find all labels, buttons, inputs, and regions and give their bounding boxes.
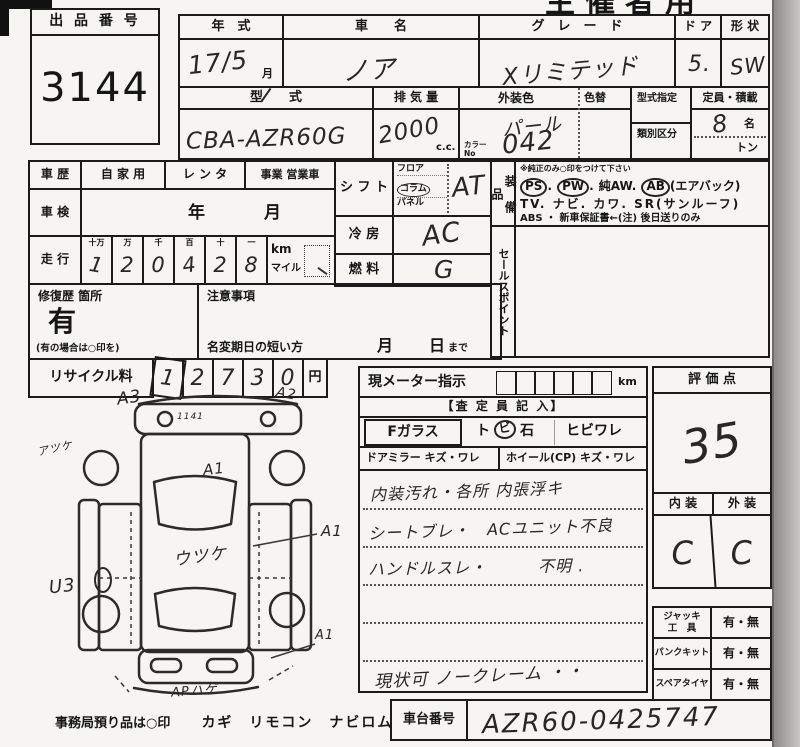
meter-header-row: 現メーター指示 km [360,368,646,398]
mileage-d2: 0 [144,248,173,282]
inspection-year: 年 [188,204,205,223]
year-value-cell: 17/5 月 [178,38,284,88]
spare-tire-value: 有・無 [710,668,772,701]
mileage-d0: 1 [79,246,113,285]
grade-label-cell: グ レ ー ド [478,14,676,40]
chassis-label-cell: 車台番号 [390,699,468,741]
history-rental-cell: レ ン タ [164,160,246,190]
mileage-km: km [271,243,291,256]
jack-label-line1: ジャッキ [663,611,701,623]
score-box: 評 価 点 35 内 装 外 装 C C [652,366,772,589]
mileage-digit-5: 一 8 [235,235,268,285]
name-label-cell: 車 名 [282,14,480,40]
mileage-h4: 十 [206,237,235,248]
color-label: 外装色 [498,92,534,105]
model-value-cell: CBA-AZR60G [178,108,374,160]
puncture-kit-value: 有・無 [710,637,772,670]
damage-code-a1-center: A1 [202,459,226,479]
mileage-d1: 2 [113,248,142,282]
fglass-opt-pre: ト [476,424,490,439]
note-line [363,546,643,548]
history-business-cell: 事業 営業車 [244,160,336,190]
car-diagram: A3 A2 1141 アツケ A1 ウツケ A1 U3 A1 APハゲ [35,388,357,708]
shift-value: AT [451,170,488,203]
chassis-value-cell: AZR60-0425747 [466,699,772,741]
meter-digit-box [515,371,536,395]
capacity-value: 8 [710,109,730,139]
history-label-cell: 車 歴 [28,160,82,190]
capacity-value-cell: 8 名 トン [690,108,770,160]
meter-digit-box [534,371,555,395]
repair-value: 有 [48,307,76,338]
footer-note: 事務局預り品は○印 カギ リモコン ナビロム [55,712,393,731]
mileage-h5: 一 [237,237,266,248]
fglass-label: Fガラス [364,419,462,446]
meter-unit: km [618,376,637,388]
shift-value-cell: フロア コラム パネル AT [392,160,492,217]
spec-designation-label: 型式指定 [637,93,677,104]
sales-point-label-cell: セールスポイント [490,225,516,358]
jack-value: 有・無 [710,606,772,639]
door-value: 5. [688,52,711,77]
mirror-wheel-row: ドアミラー キズ・ワレ ホイール(CP) キズ・ワレ [360,448,646,471]
mileage-digit-1: 万 2 [111,235,144,285]
door-label-cell: ド ア [674,14,722,40]
equipment-aw: 純AW. [599,179,637,193]
capacity-unit: 名 [744,118,755,130]
grade-value-cell: Xリミテッド [478,38,676,88]
model-label-cell: 型 式 [178,86,374,110]
year-unit: 月 [262,68,273,80]
equipment-line3: ABS ・ 新車保証書←(注) 後日送りのみ [520,213,764,224]
appraiser-note-2: シートブレ・ ACユニット不良 [368,512,614,545]
recolor-label: 色替 [584,92,606,104]
capacity-label-cell: 定員・積載 [690,86,770,110]
name-value: ノア [341,48,397,89]
damage-code-a2: A2 [275,384,298,403]
spec-designation-cell: 型式指定 [630,86,692,124]
model-value: CBA-AZR60G [186,123,347,155]
mileage-mile: マイル [271,263,301,274]
fglass-row: Fガラス ト ビ 石 ヒビワレ [360,418,646,448]
mileage-digit-4: 十 2 [204,235,237,285]
meter-digit-box [496,371,517,395]
equipment-line2: TV. ナビ. カワ. SR(サンルーフ) [520,198,764,211]
disp-unit: c.c. [436,142,455,153]
inspection-value-cell: 年 月 [80,188,336,237]
exterior-label: 外 装 [714,494,770,514]
interior-value: C [652,514,717,591]
sales-point-content [514,225,770,358]
meter-digit-box [553,371,574,395]
appraiser-header: 【査 定 員 記 入】 [360,398,646,418]
equipment-ab-note: (エアバック) [670,179,741,193]
deadline-until: まで [448,343,468,354]
deadline-month: 月 [377,337,393,355]
chassis-value: AZR60-0425747 [482,702,721,740]
equipment-ps: PS [520,178,547,197]
meter-digit-box [572,371,593,395]
capacity-divider [694,136,766,138]
damage-code-u3: U3 [48,575,77,599]
wheel-label: ホイール(CP) キズ・ワレ [506,452,635,464]
note-line [363,508,643,510]
jack-label-line2: 工 具 [668,623,697,635]
mileage-d3: 4 [173,246,206,284]
fglass-opt-post: 石 [520,424,534,439]
equipment-content: ※純正のみ○印をつけて下さい PS. PW. 純AW. AB(エアバック) TV… [514,160,770,227]
equipment-ab: AB [641,178,669,197]
bottom-damage-note: APハゲ [170,678,218,700]
mileage-label-cell: 走 行 [28,235,82,285]
shape-value: SW [729,52,767,80]
footer-deposit-label: 事務局預り品は○印 [55,716,170,731]
shape-label-cell: 形 状 [720,14,770,40]
disp-value: 2000 [376,113,442,149]
damage-code-a1-lower: A1 [315,628,334,643]
year-label-cell: 年 式 [178,14,284,40]
cooling-label-cell: 冷 房 [334,215,394,255]
mileage-digit-3: 百 4 [173,235,206,285]
scan-right-strip [772,0,800,747]
meter-digit-box [591,371,612,395]
equipment-label-cell: 装 備 品 [490,160,516,227]
year-value: 17/5 [187,45,250,80]
cooling-value-cell: AC [392,215,492,255]
equipment-note: ※純正のみ○印をつけて下さい [520,164,764,174]
color-no-value: 042 [501,125,556,160]
shift-opt-panel: パネル [397,198,447,209]
appraiser-note-1: 内装汚れ・各所 内張浮キ [370,475,564,506]
equipment-dot1: . [547,179,552,193]
inspection-label-cell: 車 検 [28,188,82,237]
fuel-label-cell: 燃 料 [334,253,394,287]
fuel-value: G [434,255,454,284]
shift-options: フロア コラム パネル [397,164,449,213]
auction-number-box: 出 品 番 号 3144 [30,8,160,145]
color-no-label: カラーNo [464,140,492,159]
auction-number-value: 3144 [32,38,158,138]
auction-number-label: 出 品 番 号 [32,10,158,36]
scan-mark-left [0,0,9,36]
load-unit: トン [736,142,758,154]
spare-tire-label: スペアタイヤ [652,668,712,701]
repair-box: 修復歴 箇所 有 (有の場合は○印を) [28,283,199,360]
class-division-label: 類別区分 [637,129,677,140]
mile-checkbox-mark [317,267,327,275]
shift-opt-floor: フロア [397,164,447,176]
shift-label-cell: シ フ ト [334,160,394,217]
mileage-digit-0: 十万 1 [80,235,113,285]
footer-deposit-items: カギ リモコン ナビロム [201,715,393,731]
mirror-wheel-divider [498,448,500,469]
fglass-opt2: ヒビワレ [566,424,622,439]
exterior-value: C [710,513,773,591]
disp-label-cell: 排 気 量 [372,86,460,110]
mileage-d5: 8 [237,248,266,282]
fglass-circled-option: ビ [493,419,517,441]
repair-note: (有の場合は○印を) [36,343,119,355]
note-line [363,622,643,624]
inspection-month: 月 [264,204,281,223]
mileage-h1: 万 [113,237,142,248]
note-line [363,584,643,586]
shape-value-cell: SW [720,38,770,88]
class-division-cell: 類別区分 [630,122,692,160]
mileage-d4: 2 [206,248,235,282]
caution-box: 注意事項 名変期日の短い方 月 日 まで [197,283,502,360]
disp-value-cell: 2000 c.c. [372,108,460,160]
mileage-h2: 千 [144,237,173,248]
deadline-label: 名変期日の短い方 [207,341,303,354]
jack-row-label: ジャッキ 工 具 [652,606,712,639]
repair-label: 修復歴 箇所 [38,290,102,303]
color-value-cell: パール カラーNo 042 [458,108,632,160]
cooling-value: AC [420,216,463,252]
meter-table: 現メーター指示 km 【査 定 員 記 入】 Fガラス ト ビ 石 ヒビワレ ド… [358,366,648,693]
fuel-value-cell: G [392,253,492,287]
recolor-divider [578,88,580,158]
damage-code-a3: A3 [116,386,143,409]
color-label-cell: 外装色 色替 [458,86,632,110]
shift-opt-column: コラム [397,183,430,196]
puncture-kit-label: パンクキット [652,637,712,670]
mirror-label: ドアミラー キズ・ワレ [366,452,480,464]
score-value: 35 [646,385,777,502]
mileage-digit-2: 千 0 [142,235,175,285]
door-value-cell: 5. [674,38,722,88]
meter-label: 現メーター指示 [368,375,466,390]
roof-note: 1141 [177,412,204,422]
mileage-unit-cell: km マイル [266,235,336,285]
appraiser-note-3: ハンドルスレ・ 不明 . [368,552,585,580]
caution-label: 注意事項 [207,290,255,303]
mile-checkbox [304,245,330,277]
history-private-cell: 自 家 用 [80,160,166,190]
auction-sheet: 主催者用 出 品 番 号 3144 年 式 車 名 グ レ ー ド ド ア 形 … [0,0,800,747]
deadline-day: 日 [429,337,445,355]
equipment-dot2: . [589,179,594,193]
fglass-divider [554,420,555,445]
equipment-pw: PW [557,178,589,197]
damage-code-a1-right: A1 [321,522,343,540]
name-value-cell: ノア [282,38,480,88]
